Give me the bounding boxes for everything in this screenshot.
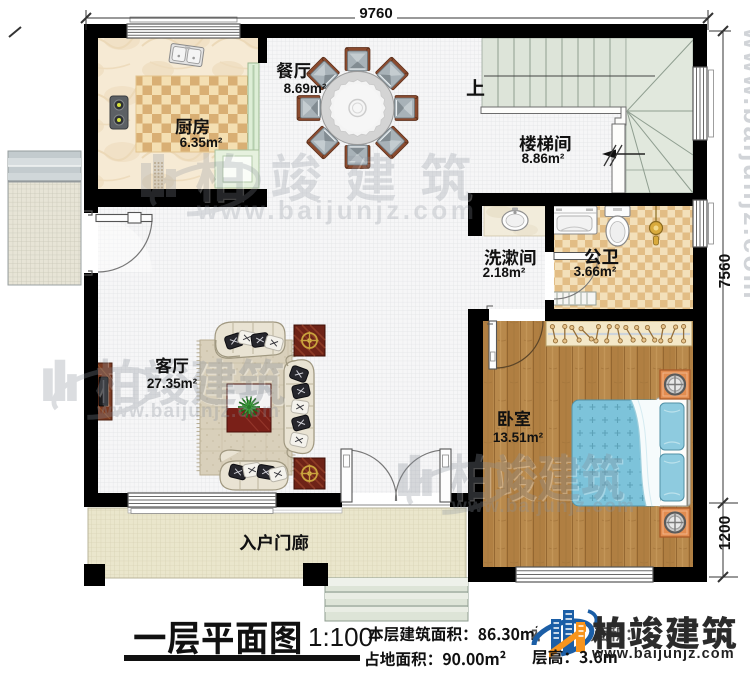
svg-text:www.baijunjz.com: www.baijunjz.com	[738, 27, 750, 301]
svg-text:7560: 7560	[717, 254, 734, 288]
svg-text:1:100: 1:100	[308, 622, 373, 652]
svg-text:8.69m²: 8.69m²	[284, 81, 327, 96]
svg-text:6.35m²: 6.35m²	[180, 135, 223, 150]
svg-text:13.51m²: 13.51m²	[493, 430, 544, 445]
svg-text:8.86m²: 8.86m²	[522, 151, 565, 166]
svg-text:3.66m²: 3.66m²	[574, 264, 617, 279]
svg-text:2.18m²: 2.18m²	[483, 265, 526, 280]
svg-text:9760: 9760	[359, 5, 392, 22]
svg-text:27.35m²: 27.35m²	[147, 376, 198, 391]
svg-text:www.baijunjz.com: www.baijunjz.com	[591, 646, 735, 662]
svg-text:1200: 1200	[717, 516, 734, 550]
